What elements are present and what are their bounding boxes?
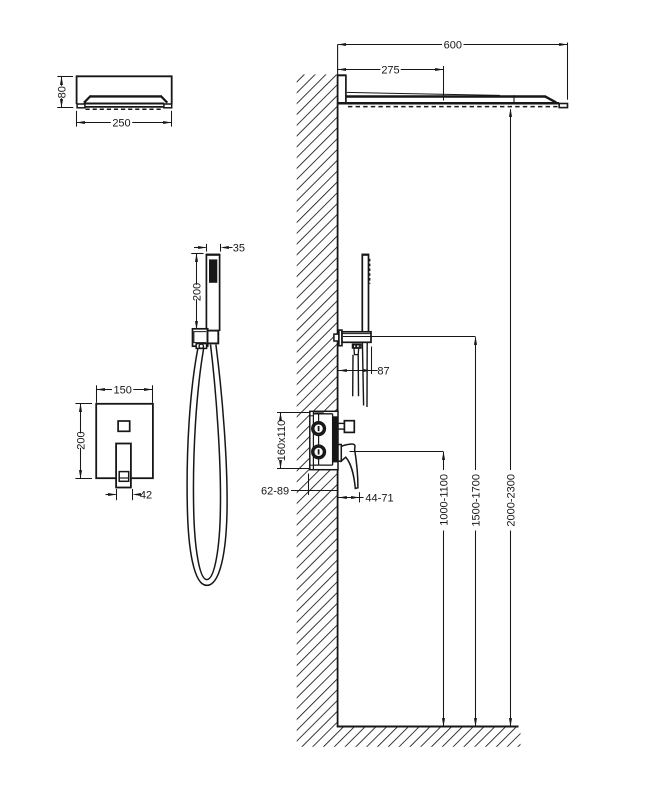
svg-text:200: 200 [75,431,87,449]
svg-text:80: 80 [56,86,68,98]
svg-text:150: 150 [114,384,132,396]
svg-text:87: 87 [377,365,389,377]
svg-text:35: 35 [233,242,245,254]
svg-text:1000-1100: 1000-1100 [439,474,451,526]
svg-text:62-89: 62-89 [261,486,289,498]
svg-text:600: 600 [444,39,462,51]
svg-text:2000-2300: 2000-2300 [506,474,518,527]
svg-text:160x110: 160x110 [276,420,288,461]
svg-text:275: 275 [381,64,399,76]
svg-text:200: 200 [191,283,203,301]
svg-text:250: 250 [112,117,130,129]
svg-text:42: 42 [140,489,152,501]
svg-text:1500-1700: 1500-1700 [471,474,483,527]
svg-text:44-71: 44-71 [365,492,393,504]
